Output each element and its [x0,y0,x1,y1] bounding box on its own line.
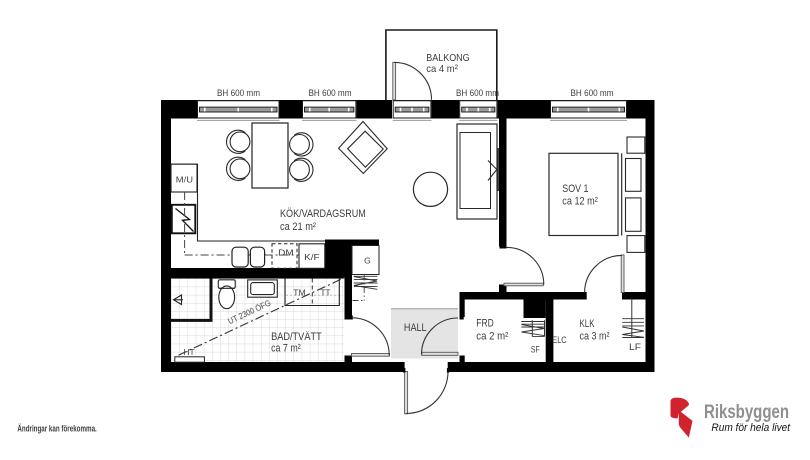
svg-text:ca 21 m²: ca 21 m² [280,221,316,233]
svg-text:KLK: KLK [580,318,595,330]
svg-text:SF: SF [531,345,540,355]
svg-text:Ändringar kan förekomma.: Ändringar kan förekomma. [17,423,96,433]
svg-text:HALL: HALL [404,322,427,334]
svg-text:ca 2 m²: ca 2 m² [476,331,508,343]
svg-text:LF: LF [629,342,642,352]
svg-text:BH 600 mm: BH 600 mm [309,88,352,99]
svg-text:Rum för hela livet: Rum för hela livet [711,422,791,434]
svg-text:K/F: K/F [304,252,320,262]
svg-text:ca 4 m²: ca 4 m² [426,63,458,75]
svg-text:ca 3 m²: ca 3 m² [580,330,610,342]
svg-text:FRD: FRD [476,318,494,330]
svg-text:ca 7 m²: ca 7 m² [271,342,301,354]
svg-text:BH 600 mm: BH 600 mm [456,88,499,99]
svg-text:TT: TT [321,288,331,298]
svg-text:BH 600 mm: BH 600 mm [217,88,260,99]
svg-text:ELC: ELC [552,335,567,345]
svg-text:Riksbyggen: Riksbyggen [704,402,789,423]
svg-text:G: G [364,256,371,266]
svg-text:KÖK/VARDAGSRUM: KÖK/VARDAGSRUM [280,208,366,220]
svg-text:BH 600 mm: BH 600 mm [571,88,614,99]
svg-text:M/U: M/U [176,174,193,184]
svg-text:DM: DM [278,247,294,257]
svg-text:SOV 1: SOV 1 [562,183,588,195]
svg-text:ca 12 m²: ca 12 m² [562,196,598,208]
svg-text:BAD/TVÄTT: BAD/TVÄTT [271,331,322,343]
